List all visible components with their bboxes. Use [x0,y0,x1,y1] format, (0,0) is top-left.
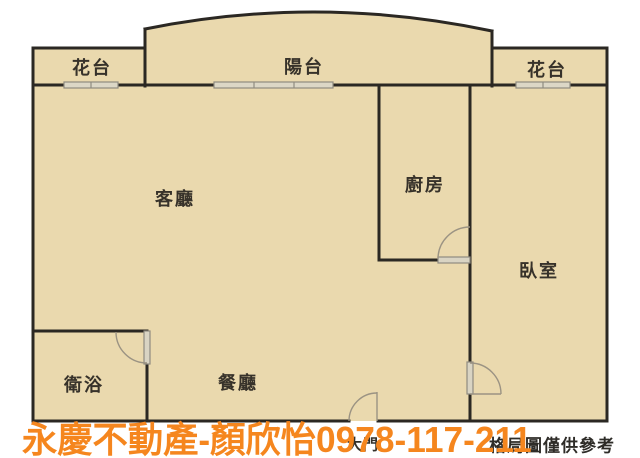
apartment-floor [33,48,607,421]
room-label-dining: 餐廳 [218,369,258,395]
room-label-bedroom: 臥室 [519,257,559,283]
window-balcony [214,82,333,88]
bedroom-door-sill [467,362,473,394]
kitchen-door-sill [438,257,470,263]
agency-watermark: 永慶不動產-顏欣怡0978-117-211 [22,411,532,458]
room-label-flowerbed-left: 花台 [72,54,112,80]
bathroom-door-sill [144,331,150,364]
room-label-kitchen: 廚房 [405,171,445,197]
room-label-bathroom: 衛浴 [64,371,104,397]
room-label-living: 客廳 [155,185,195,211]
floorplan-page: 客廳 餐廳 衛浴 廚房 臥室 陽台 花台 花台 大門 格局圖僅供參考 永慶不動產… [0,0,640,458]
room-label-balcony: 陽台 [284,53,324,79]
room-label-flowerbed-right: 花台 [527,56,567,82]
